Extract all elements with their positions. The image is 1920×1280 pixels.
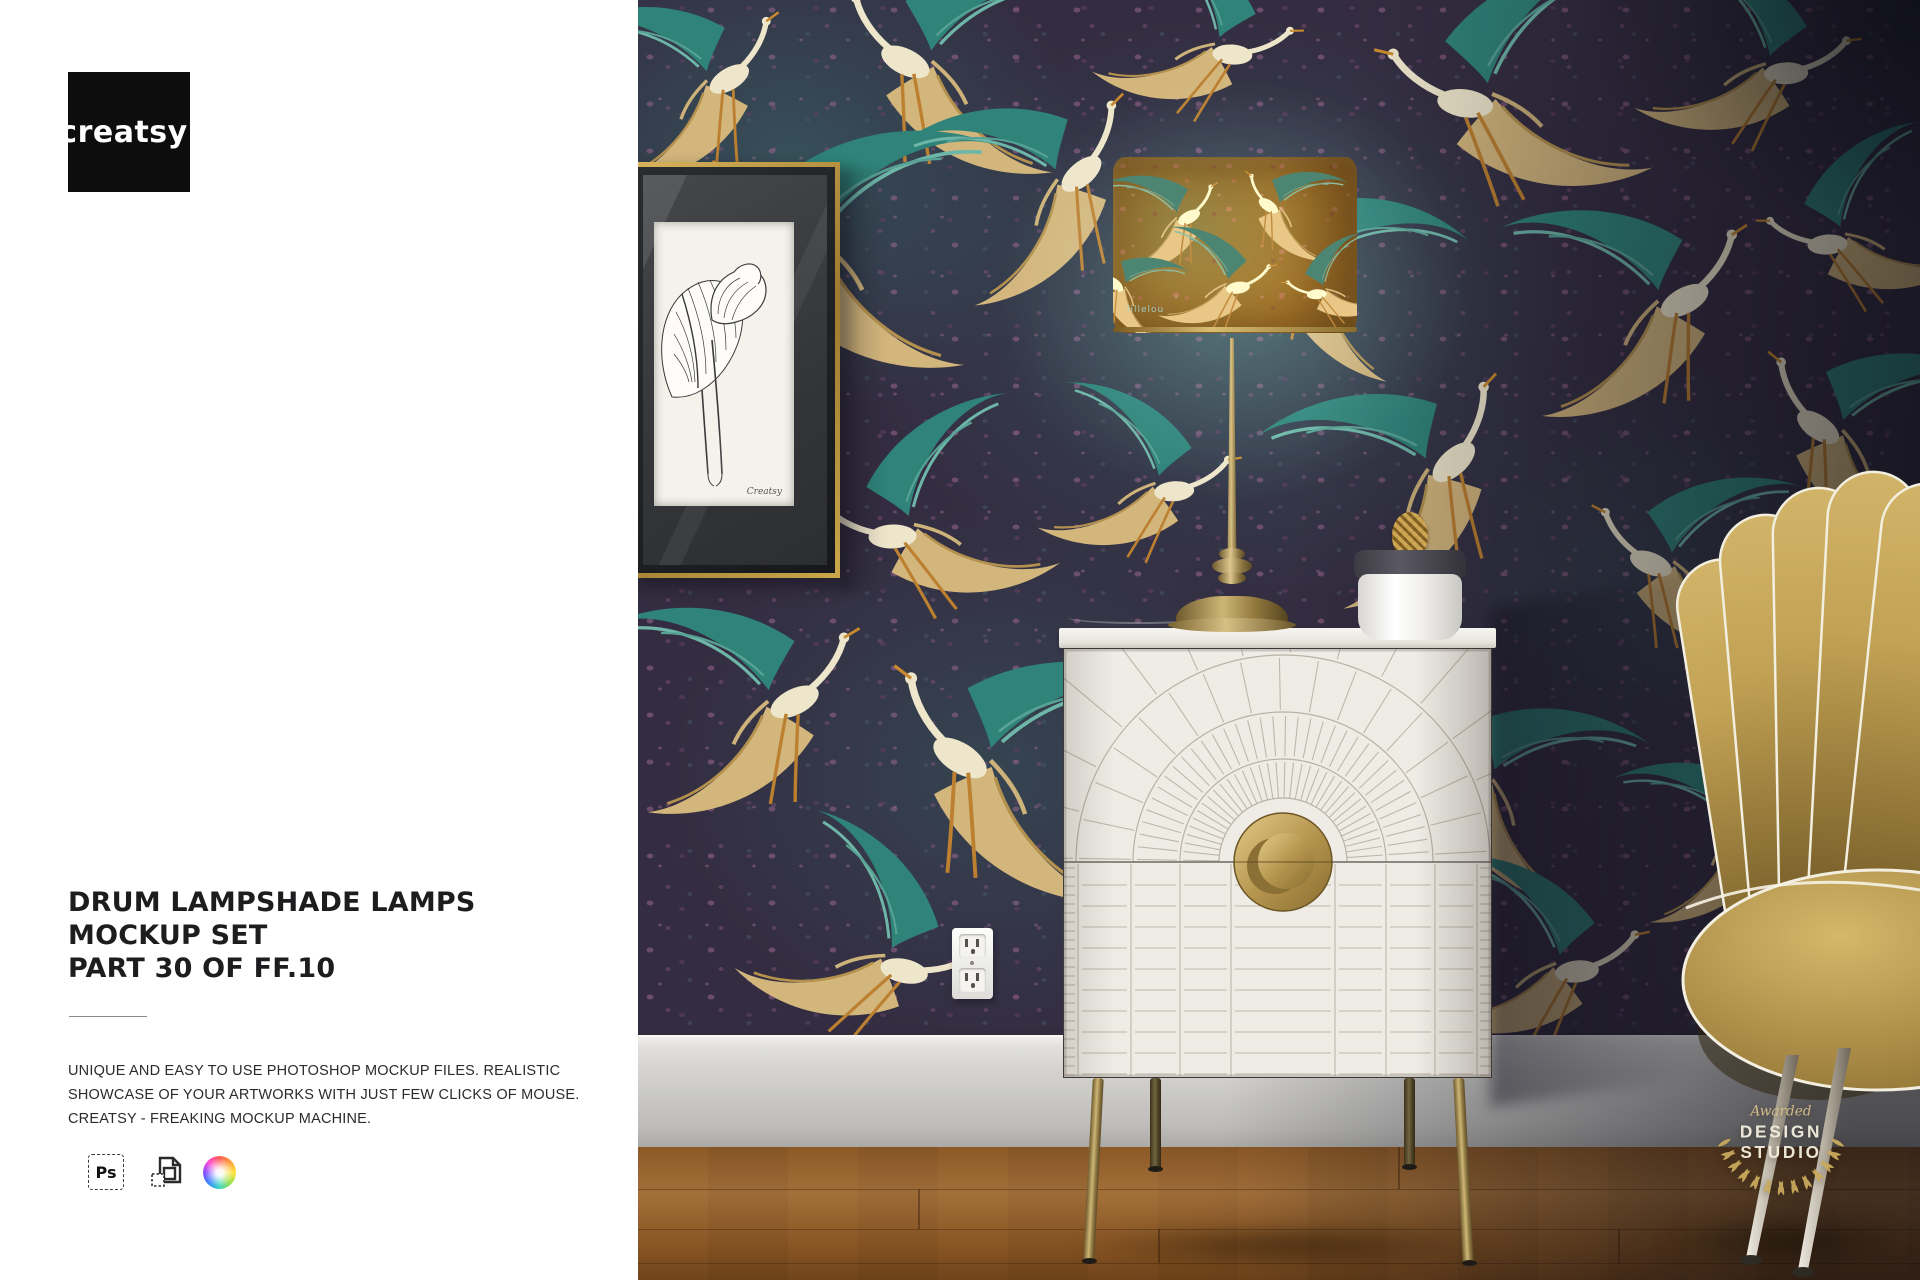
creatsy-logo: creatsy™ (68, 72, 190, 192)
description-line-3: CREATSY - FREAKING MOCKUP MACHINE. (68, 1107, 580, 1131)
photoshop-icon-label: Ps (96, 1163, 117, 1182)
outlet-slot (965, 973, 968, 981)
title-line-1: DRUM LAMPSHADE LAMPS (68, 886, 476, 919)
description-text: UNIQUE AND EASY TO USE PHOTOSHOP MOCKUP … (68, 1059, 580, 1131)
power-outlet (952, 928, 993, 999)
picture-frame: Creatsy (638, 162, 840, 578)
drawer-cabinet-front (1063, 648, 1492, 1078)
color-wheel-icon (203, 1156, 236, 1189)
outlet-slot (976, 973, 979, 981)
outlet-slot (976, 939, 979, 947)
frame-cast-shadow (840, 168, 884, 592)
cabinet-floor-shadow (1068, 1225, 1498, 1265)
floor-plank-joint (1618, 1229, 1620, 1263)
lampshade-brand-mark: lillelou (1127, 305, 1164, 315)
mockup-presentation: creatsy™ DRUM LAMPSHADE LAMPS MOCKUP SET… (0, 0, 1920, 1280)
cabinet-leg-foot (1402, 1164, 1417, 1170)
logo-trademark: ™ (190, 127, 199, 137)
description-line-1: UNIQUE AND EASY TO USE PHOTOSHOP MOCKUP … (68, 1059, 580, 1083)
mockup-scene-photo: Creatsy (638, 0, 1920, 1280)
logo-text: creatsy (59, 115, 187, 150)
badge-script-word: Awarded (1749, 1103, 1812, 1119)
page-title: DRUM LAMPSHADE LAMPS MOCKUP SET PART 30 … (68, 886, 476, 985)
outlet-screw (970, 961, 974, 965)
outlet-ground-hole (971, 949, 975, 954)
floor-plank-joint (1398, 1147, 1400, 1189)
description-line-2: SHOWCASE OF YOUR ARTWORKS WITH JUST FEW … (68, 1083, 580, 1107)
info-panel: creatsy™ DRUM LAMPSHADE LAMPS MOCKUP SET… (0, 0, 638, 1280)
smart-object-icon (146, 1152, 186, 1192)
divider-line (69, 1016, 147, 1017)
storage-jar (1358, 574, 1462, 640)
cabinet-leg-foot (1462, 1260, 1477, 1266)
drum-lampshade: lillelou (1113, 157, 1357, 333)
award-badge: Awarded DESIGN STUDIO (1713, 1062, 1849, 1198)
badge-word-design: DESIGN (1740, 1121, 1822, 1141)
cabinet-crescent-handle (1234, 813, 1332, 911)
photoshop-file-icon: Ps (88, 1154, 124, 1190)
lamp-base-plate (1168, 618, 1296, 632)
outlet-slot (965, 939, 968, 947)
cabinet-leg-foot (1148, 1166, 1163, 1172)
title-line-3: PART 30 OF FF.10 (68, 952, 476, 985)
outlet-socket (959, 968, 986, 992)
floor-plank-joint (918, 1189, 920, 1229)
outlet-socket (959, 934, 986, 958)
frame-glass-reflection (643, 175, 827, 565)
lampshade-rim (1113, 327, 1357, 332)
outlet-ground-hole (971, 983, 975, 988)
cabinet-leg-rear (1404, 1078, 1415, 1168)
badge-word-studio: STUDIO (1740, 1142, 1821, 1162)
title-line-2: MOCKUP SET (68, 919, 476, 952)
cabinet-leg-rear (1150, 1078, 1161, 1170)
cabinet-leg-foot (1082, 1258, 1097, 1264)
lamp-stem-knob (1218, 572, 1246, 584)
